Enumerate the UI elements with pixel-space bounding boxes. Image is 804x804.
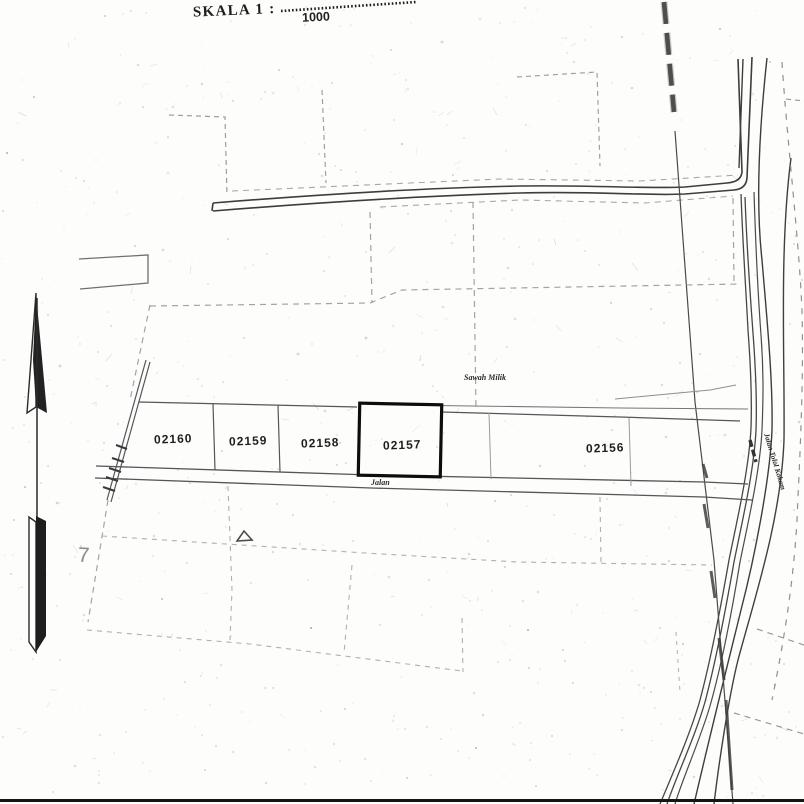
svg-text:02158: 02158 <box>301 435 340 450</box>
svg-text:02160: 02160 <box>154 431 193 446</box>
svg-text:1000: 1000 <box>302 9 330 24</box>
svg-text:02156: 02156 <box>586 440 625 455</box>
svg-text:02157: 02157 <box>383 437 422 452</box>
svg-text:7: 7 <box>77 544 90 568</box>
svg-text:Jalan: Jalan <box>370 478 390 487</box>
svg-text:Sawah Milik: Sawah Milik <box>464 373 506 382</box>
svg-text:02159: 02159 <box>229 433 268 448</box>
